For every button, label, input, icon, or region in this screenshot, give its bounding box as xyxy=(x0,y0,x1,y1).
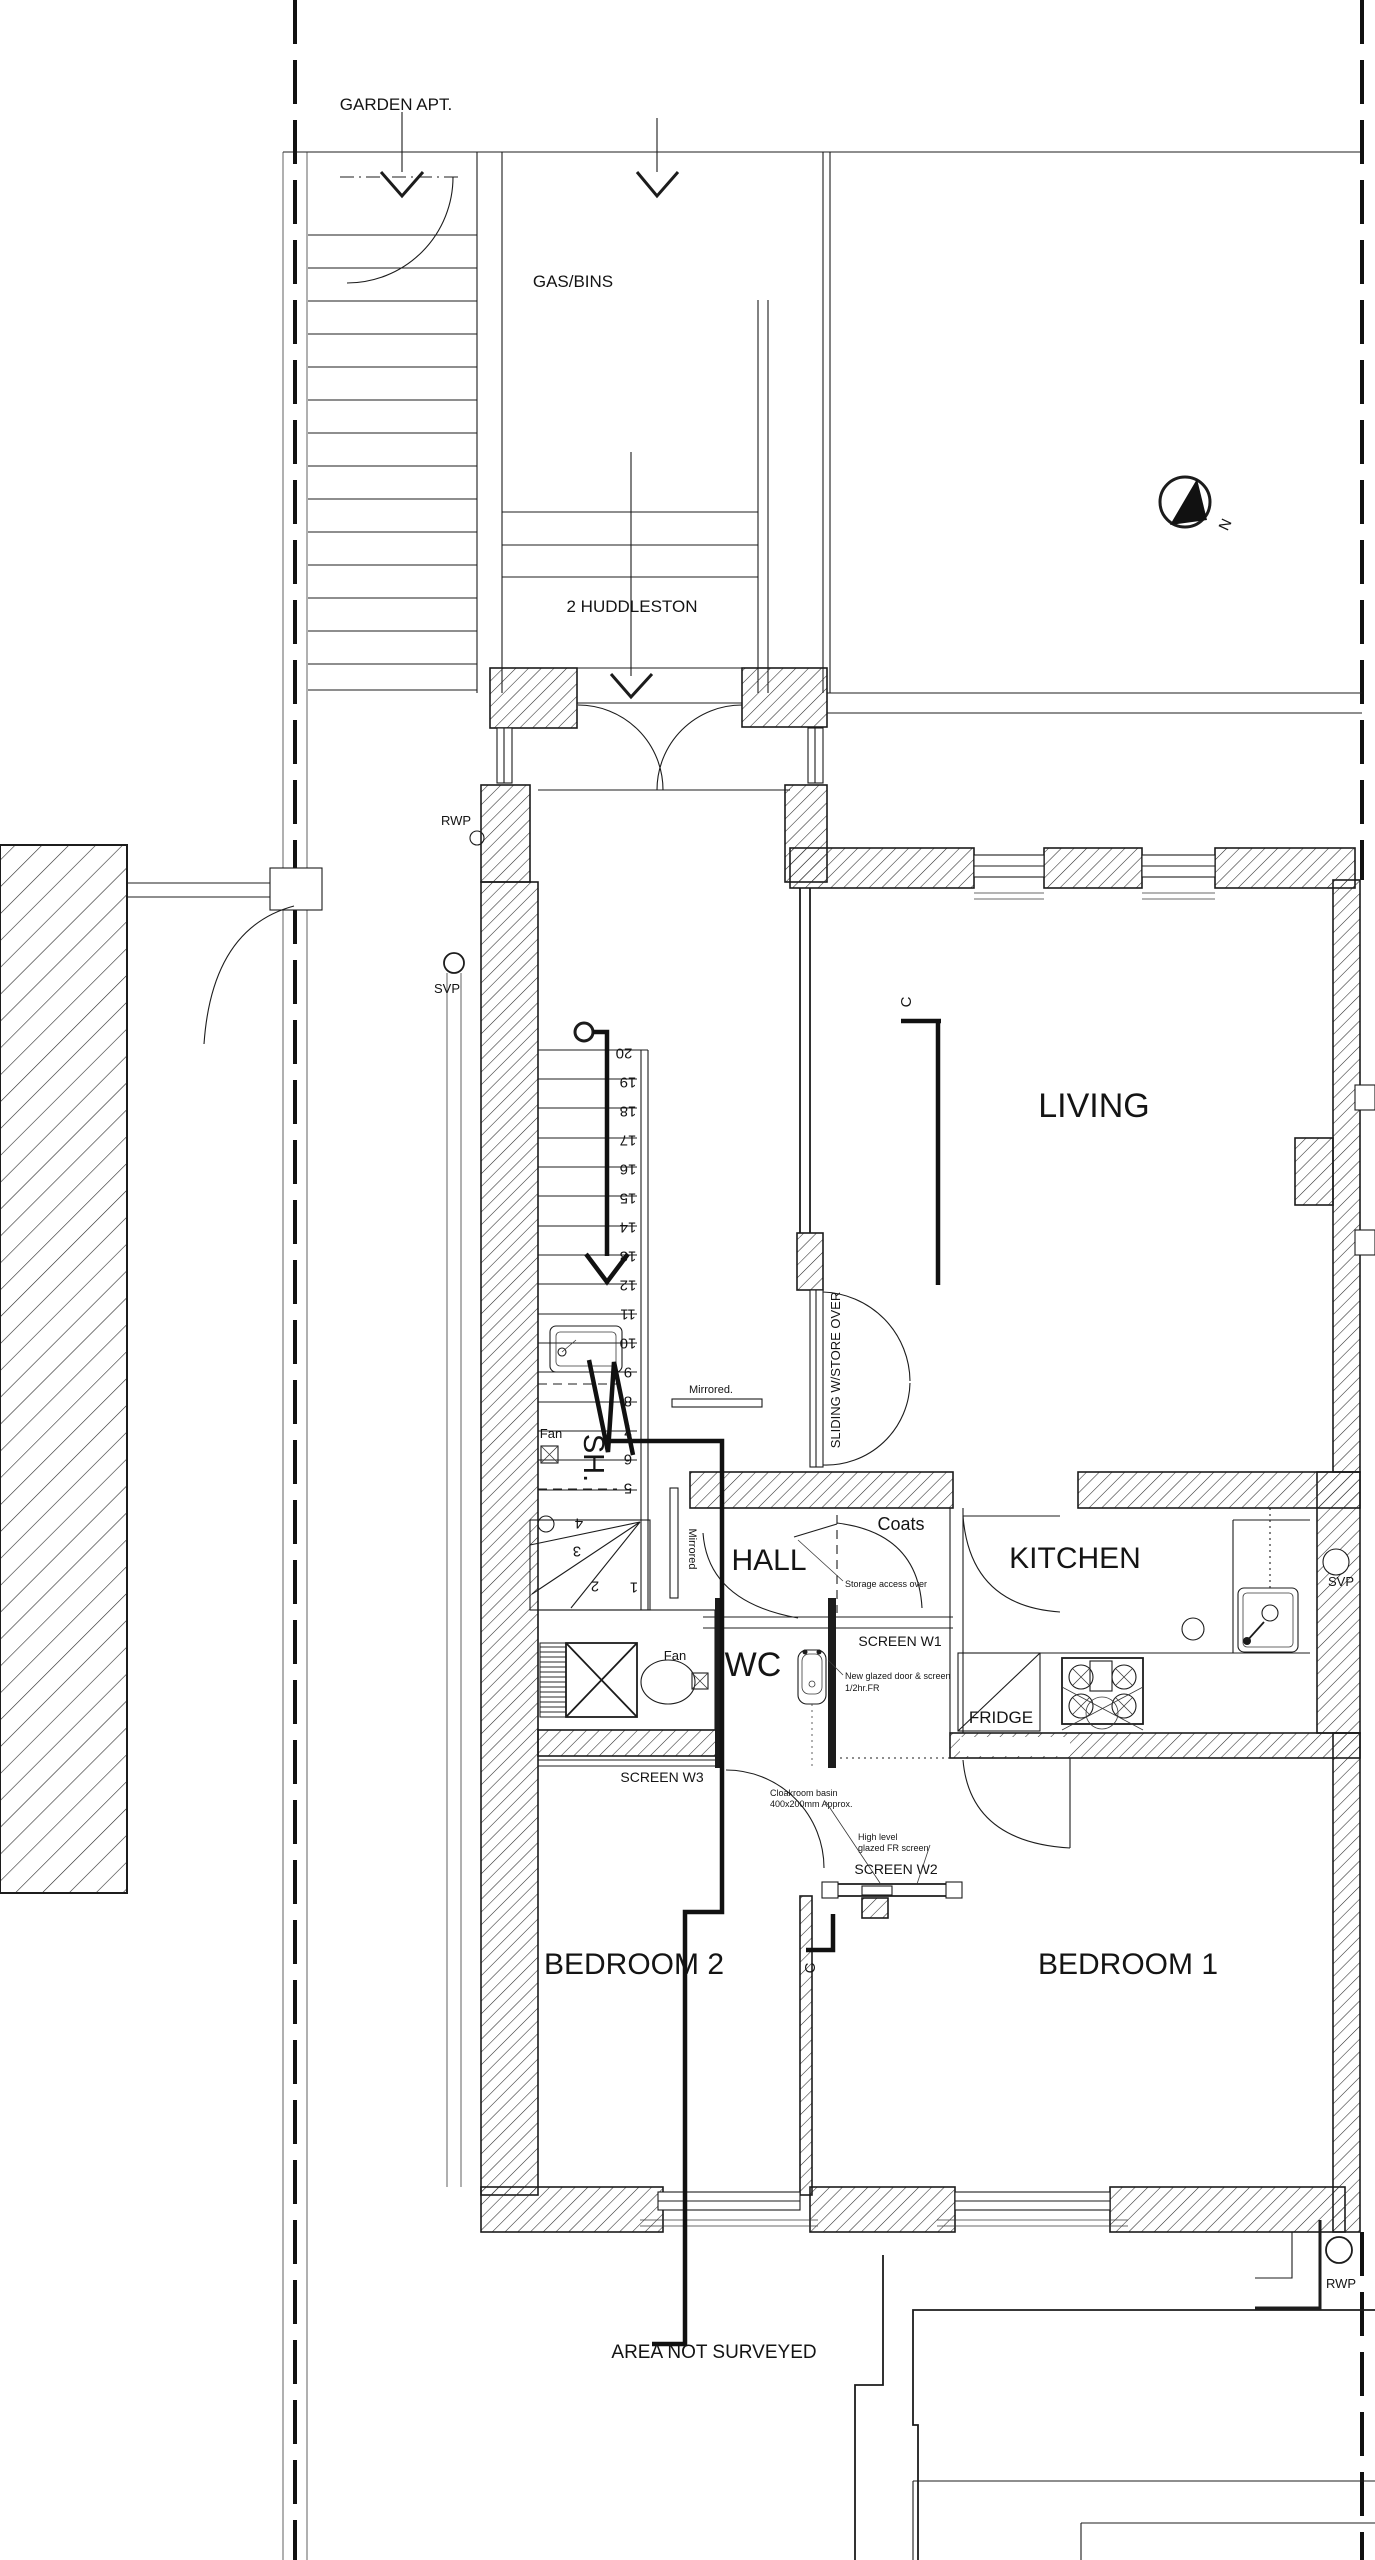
svp-right-label: SVP xyxy=(1328,1574,1354,1589)
extract-fan-icon-2 xyxy=(692,1673,708,1689)
tread-number: 4 xyxy=(575,1515,583,1532)
area-not-surveyed-label: AREA NOT SURVEYED xyxy=(611,2342,816,2363)
structural-walls xyxy=(481,848,1375,2232)
tread-number: 1 xyxy=(630,1579,638,1596)
cloakroom-note-1: Cloakroom basin xyxy=(770,1788,838,1798)
kitchen: KITCHEN FRIDGE SVP xyxy=(958,1508,1354,1731)
coats-label: Coats xyxy=(877,1514,924,1534)
coats-door-swing xyxy=(837,1523,922,1608)
screen-w1-label: SCREEN W1 xyxy=(858,1633,941,1649)
tread-number: 15 xyxy=(620,1190,637,1207)
tread-number: 14 xyxy=(620,1219,637,1236)
glazed-door-note-2: 1/2hr.FR xyxy=(845,1683,880,1693)
tread-number: 9 xyxy=(624,1364,632,1381)
gas-bins-label: GAS/BINS xyxy=(533,272,613,291)
chimney-breast xyxy=(1295,1138,1333,1205)
mirrored-door-upper xyxy=(672,1399,762,1407)
fan-duct xyxy=(641,1660,695,1704)
rwp-bottom-icon xyxy=(1326,2237,1352,2263)
garden-apt-label: GARDEN APT. xyxy=(340,95,452,114)
tread-number: 18 xyxy=(620,1103,637,1120)
storage-access-note: Storage access over xyxy=(845,1579,927,1589)
internal-stair: 20 19 18 17 16 15 14 13 12 11 10 9 8 7 6… xyxy=(530,1045,650,1611)
sliding-store-label: SLIDING W/STORE OVER xyxy=(828,1292,843,1449)
cooker-hob-icon xyxy=(1062,1658,1143,1730)
floor-plan-page: GARDEN APT. GAS/BINS 2 HUDDLESTON RWP SV… xyxy=(0,0,1375,2560)
cloakroom-note-2: 400x200mm Approx. xyxy=(770,1799,853,1809)
bedroom2-door-swing xyxy=(726,1770,824,1868)
fan-lobby-label: Fan xyxy=(664,1648,686,1663)
living-room: SLIDING W/STORE OVER LIVING xyxy=(797,888,1150,1467)
tread-number: 19 xyxy=(620,1074,637,1091)
north-label: N xyxy=(1214,516,1234,533)
bedroom1-label: BEDROOM 1 xyxy=(1038,1948,1218,1981)
bedrooms: BEDROOM 2 BEDROOM 1 xyxy=(544,1948,1218,1981)
fan-shower-label: Fan xyxy=(540,1426,562,1441)
front-door-right-swing xyxy=(657,705,742,790)
svp-right-icon xyxy=(1323,1549,1349,1575)
wc-room: WC xyxy=(725,1646,826,1768)
living-label: LIVING xyxy=(1038,1087,1149,1125)
cloakroom-basin-plan xyxy=(862,1886,892,1895)
wc-label: WC xyxy=(725,1646,782,1684)
screen-w3-label: SCREEN W3 xyxy=(620,1769,703,1785)
mirrored-door-lower xyxy=(670,1488,678,1598)
tread-number: 11 xyxy=(620,1306,636,1323)
louvre-grille xyxy=(540,1643,566,1717)
bedroom-lobby: SCREEN W3 SCREEN W2 Cloakroom basin 400x… xyxy=(538,1660,1070,1918)
bedroom1-door-swing xyxy=(963,1760,1070,1848)
glazed-door-note-1: New glazed door & screen xyxy=(845,1671,951,1681)
hall-label: HALL xyxy=(731,1544,806,1577)
mirrored-upper-label: Mirrored. xyxy=(689,1384,733,1396)
sink-bowl xyxy=(1182,1618,1204,1640)
svp-left-icon xyxy=(444,953,464,973)
wc-basin xyxy=(798,1650,826,1705)
rwp-bottom-label: RWP xyxy=(1326,2276,1356,2291)
kitchen-label: KITCHEN xyxy=(1009,1542,1141,1575)
garden-apt-arrow-icon xyxy=(381,112,423,196)
north-arrow-icon: N xyxy=(1160,477,1234,533)
external-stair-treads xyxy=(308,235,477,690)
garden-apt-area: GARDEN APT. GAS/BINS 2 HUDDLESTON xyxy=(308,95,830,697)
kitchen-sink xyxy=(1238,1588,1298,1652)
svp-left-label: SVP xyxy=(434,981,460,996)
tread-number: 12 xyxy=(620,1277,637,1294)
front-door-left-swing xyxy=(578,705,663,790)
gas-bins-arrow-icon xyxy=(637,118,678,196)
neighbour-building-block xyxy=(0,845,127,1893)
fridge: FRIDGE xyxy=(958,1653,1040,1731)
tread-number: 3 xyxy=(573,1543,581,1560)
tread-number: 16 xyxy=(620,1161,637,1178)
entrance-arrow-icon xyxy=(611,452,652,697)
front-gate-swing xyxy=(204,906,294,1044)
tread-number: 20 xyxy=(616,1045,633,1062)
floor-plan-drawing: GARDEN APT. GAS/BINS 2 HUDDLESTON RWP SV… xyxy=(0,0,1375,2560)
bedroom2-label: BEDROOM 2 xyxy=(544,1948,724,1981)
tread-number: 17 xyxy=(620,1132,637,1149)
rear-context: RWP AREA NOT SURVEYED xyxy=(611,2220,1375,2560)
fridge-label: FRIDGE xyxy=(969,1708,1033,1727)
rwp-top-label: RWP xyxy=(441,813,471,828)
highlevel-note-1: High level xyxy=(858,1832,898,1842)
windows xyxy=(640,855,1215,2226)
section-marker-top: C xyxy=(898,996,915,1007)
section-marker-bottom: C xyxy=(802,1962,819,1973)
entrance-porch: RWP SVP xyxy=(434,668,1362,996)
mirrored-lower-label: Mirrored xyxy=(686,1529,698,1570)
rooflight-over-icon xyxy=(566,1643,637,1717)
tread-number: 2 xyxy=(591,1578,599,1595)
tread-number: 5 xyxy=(624,1480,632,1497)
highlevel-note-2: glazed FR screen xyxy=(858,1843,929,1853)
address-label: 2 HUDDLESTON xyxy=(567,597,698,616)
site-boundary-lines xyxy=(0,0,1362,2560)
shower-tray xyxy=(550,1326,622,1372)
stair-winders xyxy=(530,1520,650,1610)
